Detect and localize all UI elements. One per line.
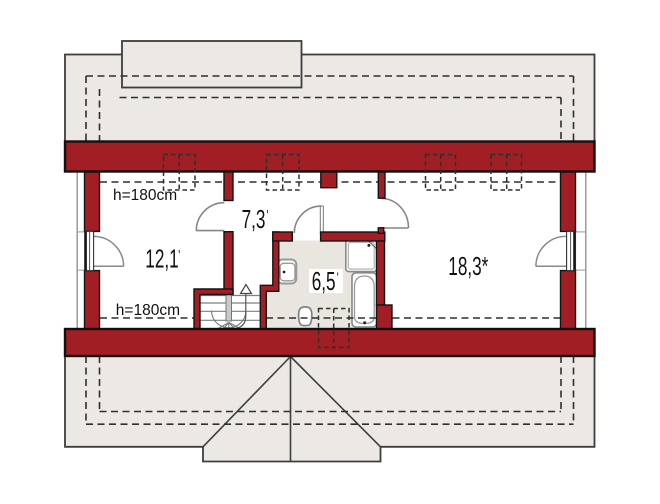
svg-text:12,1: 12,1: [145, 244, 178, 274]
svg-text:': ': [178, 247, 180, 264]
svg-text:7,3: 7,3: [242, 204, 266, 234]
svg-text:': ': [267, 207, 269, 224]
svg-text:h=180cm: h=180cm: [113, 187, 177, 204]
svg-text:6,5: 6,5: [312, 267, 336, 297]
svg-text:h=180cm: h=180cm: [116, 302, 180, 319]
svg-text:': ': [337, 270, 339, 287]
svg-text:18,3*: 18,3*: [448, 251, 488, 281]
